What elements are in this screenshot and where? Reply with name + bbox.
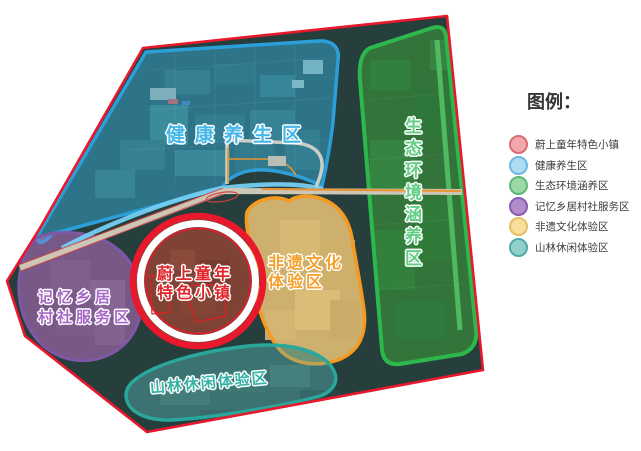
legend-swatch-town: [509, 135, 528, 154]
legend-swatch-memory: [509, 197, 528, 216]
legend-item: 健康养生区: [509, 157, 641, 174]
zone-label-heritage-line2: 体验区: [268, 268, 325, 292]
legend-item: 蔚上童年特色小镇: [509, 136, 641, 153]
zone-label-memory-line1: 记忆乡居: [38, 286, 114, 307]
legend-label: 蔚上童年特色小镇: [535, 137, 619, 152]
zone-label-eco: 生态环境涵养区: [399, 117, 424, 271]
legend-label: 健康养生区: [535, 158, 588, 173]
legend-swatch-eco: [509, 176, 528, 195]
legend-swatch-heritage: [509, 217, 528, 236]
legend-swatch-forest: [509, 238, 528, 257]
legend-title: 图例：: [527, 88, 641, 114]
legend-item: 山林休闲体验区: [509, 239, 641, 256]
planning-map-page: 健康养生区 生态环境涵养区 蔚上童年 特色小镇 记忆乡居 村社服务区 非遗文化 …: [0, 0, 641, 451]
legend-label: 非遗文化体验区: [535, 219, 609, 234]
legend-item: 生态环境涵养区: [509, 177, 641, 194]
legend-item: 记忆乡居村社服务区: [509, 198, 641, 215]
legend-label: 山林休闲体验区: [535, 240, 609, 255]
zone-label-memory-line2: 村社服务区: [38, 306, 133, 327]
legend-swatch-health: [509, 156, 528, 175]
zone-label-health: 健康养生区: [166, 120, 311, 147]
legend-item: 非遗文化体验区: [509, 218, 641, 235]
legend: 图例： 蔚上童年特色小镇 健康养生区 生态环境涵养区 记忆乡居村社服务区 非遗文…: [505, 88, 641, 260]
legend-label: 记忆乡居村社服务区: [535, 199, 630, 214]
zone-label-town-line2: 特色小镇: [157, 279, 233, 303]
legend-label: 生态环境涵养区: [535, 178, 609, 193]
